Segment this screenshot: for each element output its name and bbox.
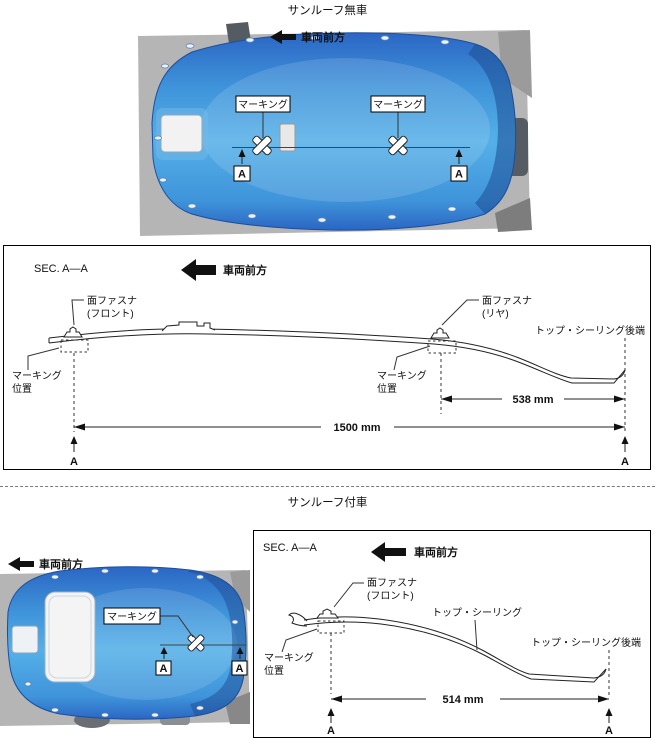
svg-text:マーキング: マーキング <box>12 369 62 382</box>
overhead-console <box>161 115 202 152</box>
svg-text:位置: 位置 <box>264 664 284 677</box>
section-title: SEC. A—A <box>34 263 88 275</box>
sunroof-opening <box>45 592 95 682</box>
dimension-514: 514 mm <box>331 694 609 706</box>
marking-label: マーキング <box>238 98 288 111</box>
top-ceiling-rear-end-label: トップ・シーリング後端 <box>531 636 641 649</box>
marking-position-front: マーキング 位置 <box>264 629 317 677</box>
overhead-console <box>12 626 38 653</box>
section-title: SEC. A—A <box>263 542 317 554</box>
marking-zone-front <box>61 340 88 352</box>
fastener-front-icon <box>64 327 82 337</box>
svg-text:538 mm: 538 mm <box>513 394 554 406</box>
figure-headliner-top-view-no-sunroof: マーキング マーキング A A 車両前方 <box>130 18 535 242</box>
svg-text:1500 mm: 1500 mm <box>333 422 380 434</box>
fastener-rear-leader <box>442 300 479 325</box>
svg-text:A: A <box>236 663 244 675</box>
marking-zone-rear <box>428 341 456 353</box>
top-ceiling-rear-end-label: トップ・シーリング後端 <box>535 324 645 337</box>
svg-text:マーキング: マーキング <box>377 369 427 382</box>
roof-clip-detail <box>162 322 215 331</box>
svg-text:A: A <box>70 456 78 467</box>
svg-text:マーキング: マーキング <box>264 651 314 664</box>
section-view-sunroof: SEC. A—A 車両前方 面ファスナ (フロント) トップ・シーリング トップ… <box>254 531 649 735</box>
front-direction-arrow-icon <box>8 557 34 571</box>
svg-text:A: A <box>238 169 246 181</box>
svg-text:A: A <box>621 456 629 467</box>
figure-headliner-top-view-sunroof: 車両前方 <box>0 552 253 740</box>
top-ceiling-leader <box>475 620 477 650</box>
front-direction-arrow-icon <box>371 542 406 562</box>
marking-position-rear: マーキング 位置 <box>377 346 430 395</box>
fastener-front-leader <box>334 583 364 607</box>
top-ceiling-label: トップ・シーリング <box>432 606 522 619</box>
marking-position-front: マーキング 位置 <box>12 348 62 395</box>
roof-fitting <box>280 124 295 151</box>
front-direction-label: 車両前方 <box>223 263 267 277</box>
headliner-profile-bottom <box>304 622 606 682</box>
dimension-1500: 1500 mm <box>74 422 625 434</box>
section-marker-a-left: A <box>70 436 78 467</box>
section-marker-a-left: A <box>327 708 335 735</box>
svg-text:514 mm: 514 mm <box>443 694 484 706</box>
fastener-rear-label-2: (リヤ) <box>482 309 509 320</box>
section-marker-a-right: A <box>621 436 629 467</box>
marking-label: マーキング <box>373 98 423 111</box>
svg-text:A: A <box>160 663 168 675</box>
section-view-no-sunroof: SEC. A—A 車両前方 面ファスナ (フロント) <box>4 246 649 467</box>
fastener-rear-icon <box>431 328 449 338</box>
fastener-front-icon <box>317 609 338 618</box>
section-view-box-no-sunroof: SEC. A—A 車両前方 面ファスナ (フロント) <box>3 245 651 470</box>
title-with-sunroof: サンルーフ付車 <box>0 494 655 510</box>
svg-text:A: A <box>455 169 463 181</box>
fastener-front-label-1: 面ファスナ <box>367 577 417 589</box>
service-manual-diagram: サンルーフ無車 <box>0 0 655 740</box>
fastener-rear-label-1: 面ファスナ <box>482 295 532 307</box>
front-direction-label: 車両前方 <box>301 30 345 44</box>
svg-text:A: A <box>327 725 335 735</box>
svg-text:A: A <box>605 725 613 735</box>
section-marker-a-right: A <box>605 708 613 735</box>
svg-text:位置: 位置 <box>12 382 32 395</box>
fastener-front-label-2: (フロント) <box>367 591 414 602</box>
headliner-profile-bottom <box>49 334 625 383</box>
section-view-box-sunroof: SEC. A—A 車両前方 面ファスナ (フロント) トップ・シーリング トップ… <box>253 530 651 738</box>
front-direction-label: 車両前方 <box>414 545 458 559</box>
section-divider <box>0 486 655 487</box>
fastener-front-label-2: (フロント) <box>87 309 134 320</box>
marking-label: マーキング <box>107 610 157 623</box>
front-direction-arrow-icon <box>181 259 216 281</box>
dimension-538: 538 mm <box>441 394 625 406</box>
fastener-front-label-1: 面ファスナ <box>87 295 137 307</box>
title-no-sunroof: サンルーフ無車 <box>0 2 655 18</box>
svg-text:位置: 位置 <box>377 382 397 395</box>
fastener-front-leader <box>72 300 84 325</box>
